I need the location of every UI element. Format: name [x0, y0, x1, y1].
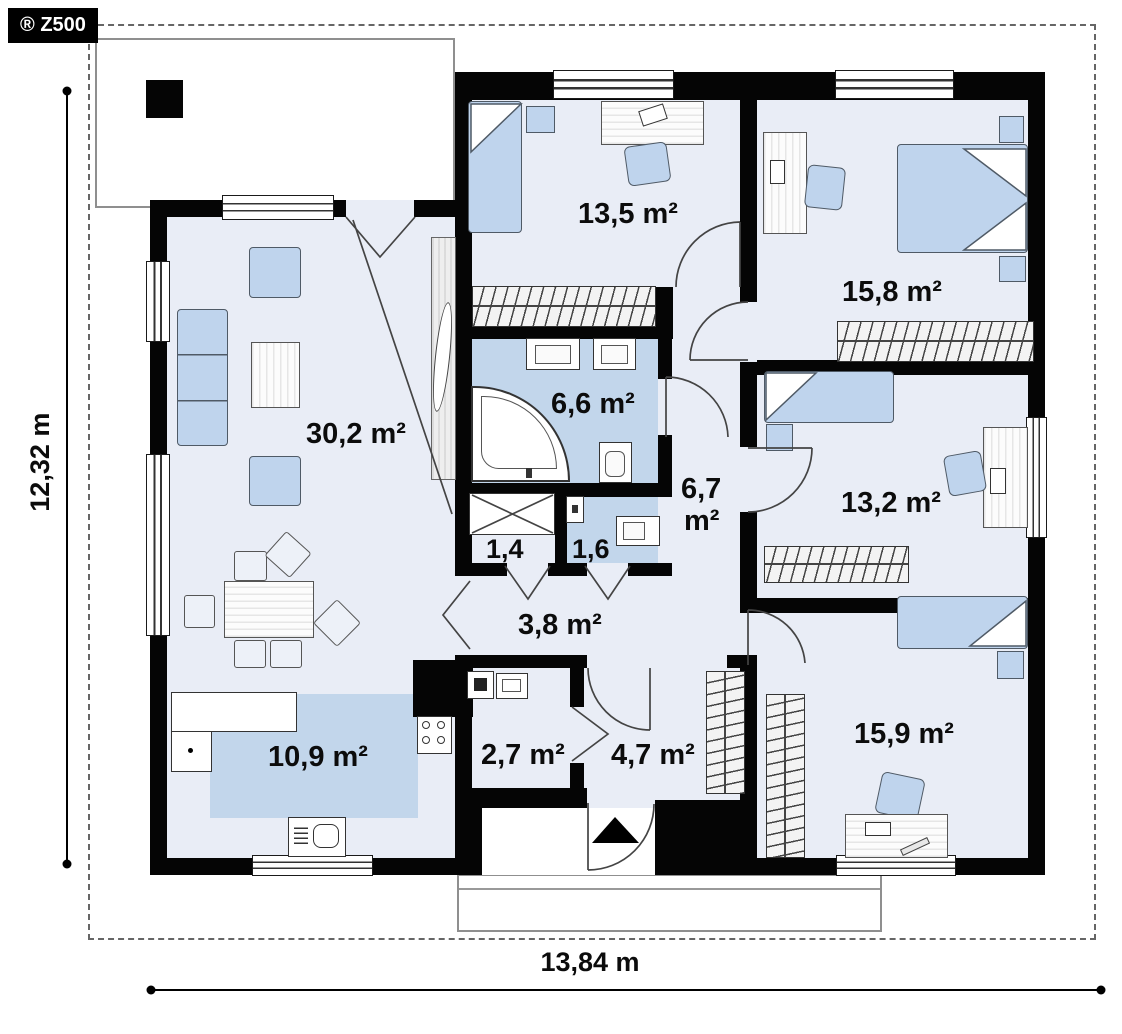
double-bed	[897, 144, 1028, 253]
room-label-bedroom-top: 13,5 m²	[578, 199, 678, 229]
wall	[658, 325, 672, 379]
wardrobe	[706, 671, 745, 794]
burner-icon	[437, 721, 445, 729]
desk-laptop	[770, 160, 785, 184]
room-label-bedroom-right-bottom: 15,9 m²	[854, 719, 954, 749]
wall	[740, 598, 757, 613]
toilet-bowl	[623, 522, 645, 540]
room-label-living: 30,2 m²	[306, 419, 406, 449]
kitchen-sink	[288, 817, 346, 857]
bed	[764, 371, 894, 423]
room-label-bedroom-right-top: 15,8 m²	[842, 277, 942, 307]
room-label-kitchen: 10,9 m²	[268, 742, 368, 772]
room-label-bedroom-right-mid: 13,2 m²	[841, 488, 941, 518]
toilet-bowl	[605, 451, 625, 477]
wall	[548, 563, 587, 576]
room-label-utility: 2,7 m²	[481, 740, 565, 770]
wall	[655, 800, 757, 875]
burner-icon	[422, 736, 430, 744]
sofa	[177, 309, 228, 446]
sink-basin	[313, 824, 339, 848]
entry-recess	[482, 808, 655, 875]
dining-chair	[234, 551, 267, 581]
sink-basin	[601, 345, 628, 364]
room-label-storage: 1,4	[486, 535, 524, 563]
wall	[740, 88, 757, 302]
bathroom-sink	[526, 338, 580, 370]
wall	[740, 512, 757, 598]
counter-dot	[188, 748, 193, 753]
desk-chair	[943, 450, 988, 497]
porch-step-line	[459, 888, 880, 890]
wardrobe	[472, 286, 656, 327]
bed	[897, 596, 1028, 649]
nightstand	[997, 651, 1024, 679]
floor-plan: 30,2 m² 10,9 m² 13,5 m² 6,6 m² 6,7 m² 1,…	[0, 0, 1122, 1034]
dimension-dot	[63, 860, 72, 869]
sink-basin	[535, 345, 571, 364]
wc-sink	[566, 496, 584, 523]
stove	[417, 716, 452, 754]
window	[553, 70, 674, 99]
wardrobe	[764, 546, 909, 583]
width-dimension-label: 13,84 m	[490, 948, 690, 976]
wardrobe	[766, 694, 805, 858]
wall	[740, 362, 757, 447]
window	[146, 454, 170, 636]
kitchen-counter	[171, 692, 297, 732]
dining-table	[224, 581, 314, 638]
bathroom-sink	[593, 338, 636, 370]
terrace	[95, 38, 455, 208]
desk-chair	[804, 164, 846, 211]
boiler	[496, 673, 528, 699]
room-label-wc: 1,6	[572, 535, 610, 563]
wall	[628, 563, 672, 576]
burner-icon	[437, 736, 445, 744]
wall	[455, 788, 587, 808]
window	[1026, 417, 1047, 538]
bed	[468, 101, 522, 233]
wall	[455, 563, 507, 576]
burner-icon	[422, 721, 430, 729]
room-label-entry-hall: 4,7 m²	[611, 740, 695, 770]
boiler-panel	[502, 679, 521, 692]
nightstand	[999, 256, 1026, 282]
window	[836, 855, 956, 876]
dining-chair	[234, 640, 266, 668]
dimension-dot	[63, 87, 72, 96]
window	[252, 855, 373, 876]
desk-laptop	[990, 468, 1006, 494]
terrace-pillar	[146, 80, 183, 118]
wall	[570, 668, 584, 707]
wc-toilet	[616, 516, 660, 546]
room-label-corridor: 3,8 m²	[518, 610, 602, 640]
storage-shaft	[469, 493, 555, 535]
chimney-block	[413, 660, 473, 717]
dining-chair	[184, 595, 215, 628]
desk-chair	[623, 141, 671, 187]
sink-basin	[572, 505, 578, 513]
window	[222, 195, 334, 220]
armchair	[249, 247, 301, 298]
wardrobe	[837, 321, 1034, 362]
room-label-hall-unit: m²	[684, 506, 719, 536]
desk-laptop	[865, 822, 891, 836]
window	[146, 261, 170, 342]
coffee-table	[251, 342, 300, 408]
nightstand	[526, 106, 555, 133]
entry-porch	[457, 874, 882, 932]
dimension-dot	[1097, 986, 1106, 995]
dining-chair	[270, 640, 302, 668]
dimension-dot	[147, 986, 156, 995]
window	[835, 70, 954, 99]
wall	[455, 325, 672, 339]
room-label-bathroom: 6,6 m²	[551, 389, 635, 419]
washing-machine	[467, 671, 494, 699]
wall	[727, 655, 757, 668]
nightstand	[766, 424, 793, 451]
wall	[570, 763, 584, 793]
desk	[845, 814, 948, 858]
armchair	[249, 456, 301, 506]
nightstand	[999, 116, 1024, 143]
height-dimension-label: 12,32 m	[26, 402, 54, 522]
bathtub-drain	[526, 468, 532, 478]
washer-door	[474, 678, 487, 691]
sink-drainer	[294, 826, 308, 844]
toilet	[599, 442, 632, 483]
brand-badge: ® Z500	[8, 8, 98, 43]
wall	[455, 655, 587, 668]
room-label-hall-value: 6,7	[681, 474, 721, 504]
